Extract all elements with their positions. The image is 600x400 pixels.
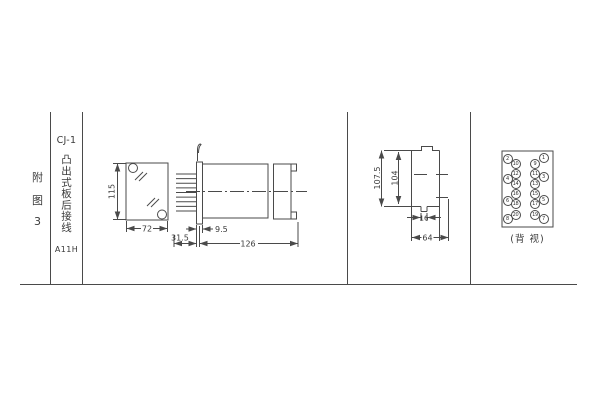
dim-label-16: 16 bbox=[420, 215, 429, 223]
mounting-hole-bottom-right bbox=[158, 210, 167, 219]
wiring-type-label: 凸出式板后接线 bbox=[59, 154, 74, 240]
dim-label-72: 72 bbox=[142, 225, 152, 234]
figure-number-label: 附 图 3 bbox=[30, 169, 45, 228]
front-view-dimensions bbox=[113, 164, 168, 233]
panel-break-mark bbox=[198, 144, 202, 161]
dim-label-9p5: 9.5 bbox=[215, 225, 228, 234]
rear-view-caption: (背 视) bbox=[498, 231, 557, 245]
terminal-pin-20: 20 bbox=[511, 210, 521, 220]
figure-char-2: 图 bbox=[32, 192, 43, 208]
terminal-studs bbox=[414, 175, 448, 198]
figure-char-1: 附 bbox=[32, 169, 43, 185]
terminal-pin-9: 9 bbox=[530, 159, 540, 169]
terminal-pin-16: 16 bbox=[511, 189, 521, 199]
dim-label-64: 64 bbox=[422, 234, 432, 243]
dim-label-126: 126 bbox=[240, 240, 255, 249]
mounting-hole-top-left bbox=[129, 164, 138, 173]
terminal-pin-15: 15 bbox=[530, 189, 540, 199]
model-label: CJ-1 bbox=[51, 135, 82, 146]
terminal-pin-19: 19 bbox=[530, 210, 540, 220]
mounting-panel bbox=[197, 162, 203, 224]
terminal-pin-13: 13 bbox=[530, 179, 540, 189]
dim-label-107p5: 107.5 bbox=[373, 167, 382, 190]
profile-view-dimensions bbox=[382, 151, 449, 242]
figure-char-3: 3 bbox=[34, 215, 41, 228]
terminal-pin-14: 14 bbox=[511, 179, 521, 189]
glass-hatch-marks bbox=[135, 172, 159, 207]
terminal-pin-5: 5 bbox=[539, 195, 549, 205]
terminal-pin-1: 1 bbox=[539, 153, 549, 163]
terminal-pin-11: 11 bbox=[530, 169, 540, 179]
terminal-pin-17: 17 bbox=[530, 199, 540, 209]
dim-label-104: 104 bbox=[391, 170, 400, 185]
code-label: A11H bbox=[51, 245, 82, 254]
table-borders bbox=[20, 112, 577, 285]
dim-label-31p5: 31.5 bbox=[171, 234, 189, 243]
front-view-outline bbox=[126, 163, 168, 220]
terminal-pin-comb bbox=[176, 174, 197, 211]
terminal-pin-10: 10 bbox=[511, 159, 521, 169]
profile-view-outline bbox=[384, 147, 448, 242]
side-view-dimensions bbox=[174, 222, 298, 247]
drawing-sheet: 115 72 bbox=[0, 0, 600, 400]
terminal-pin-7: 7 bbox=[539, 214, 549, 224]
dim-label-115: 115 bbox=[108, 184, 117, 199]
terminal-pin-3: 3 bbox=[539, 172, 549, 182]
terminal-pin-12: 12 bbox=[511, 169, 521, 179]
terminal-pin-18: 18 bbox=[511, 199, 521, 209]
side-view-outline bbox=[176, 144, 307, 224]
